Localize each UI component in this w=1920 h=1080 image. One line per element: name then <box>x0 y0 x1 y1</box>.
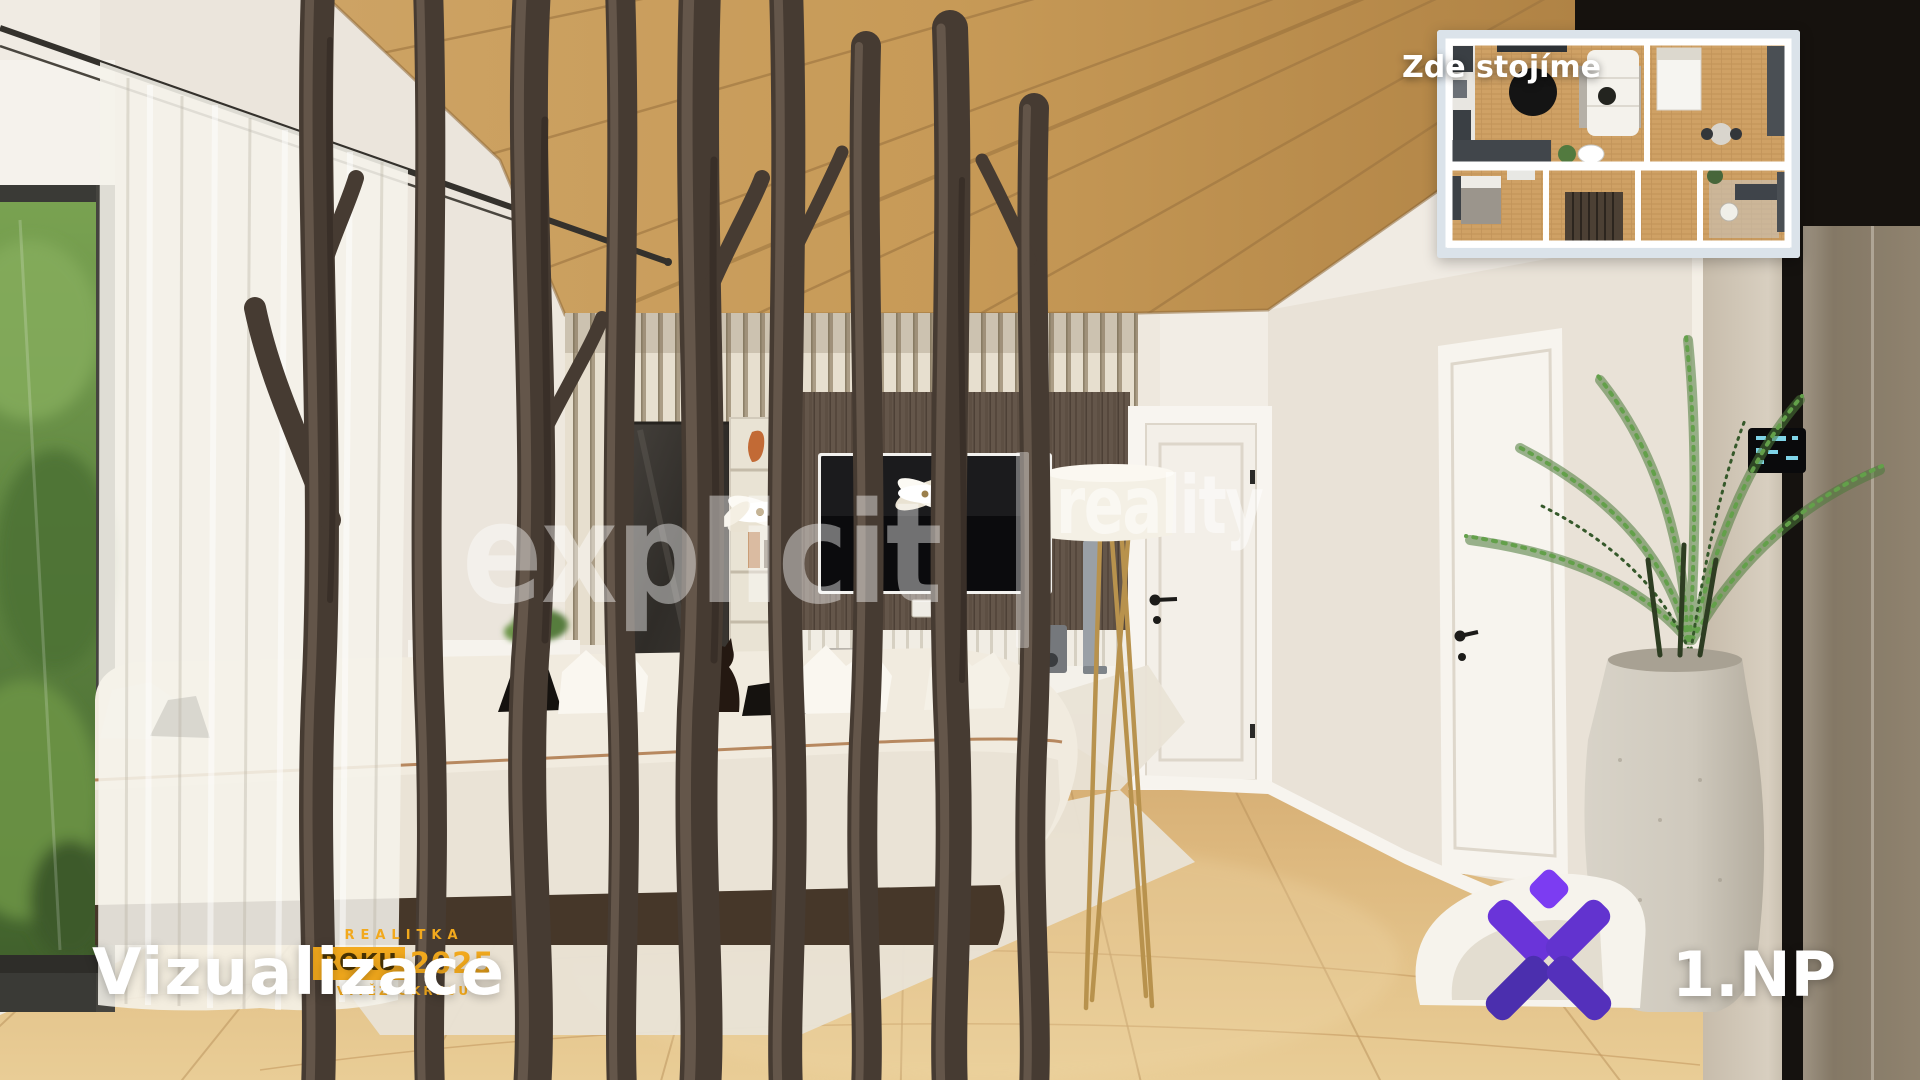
position-label: Zde stojíme <box>1402 50 1601 85</box>
door-hallway <box>1438 328 1568 884</box>
watermark-brand: explicit <box>462 478 941 632</box>
real-estate-visualization: explicit reality <box>0 0 1920 1080</box>
plan-room-hall <box>1641 170 1697 242</box>
floor-level-label: 1.NP <box>1672 938 1836 1011</box>
sheer-curtain <box>98 62 408 1010</box>
watermark-suffix: reality <box>1056 462 1262 550</box>
watermark-divider <box>1016 452 1029 648</box>
x-diamond-logo-icon <box>1478 858 1628 1033</box>
credit-title: Vizualizace <box>92 936 505 1010</box>
